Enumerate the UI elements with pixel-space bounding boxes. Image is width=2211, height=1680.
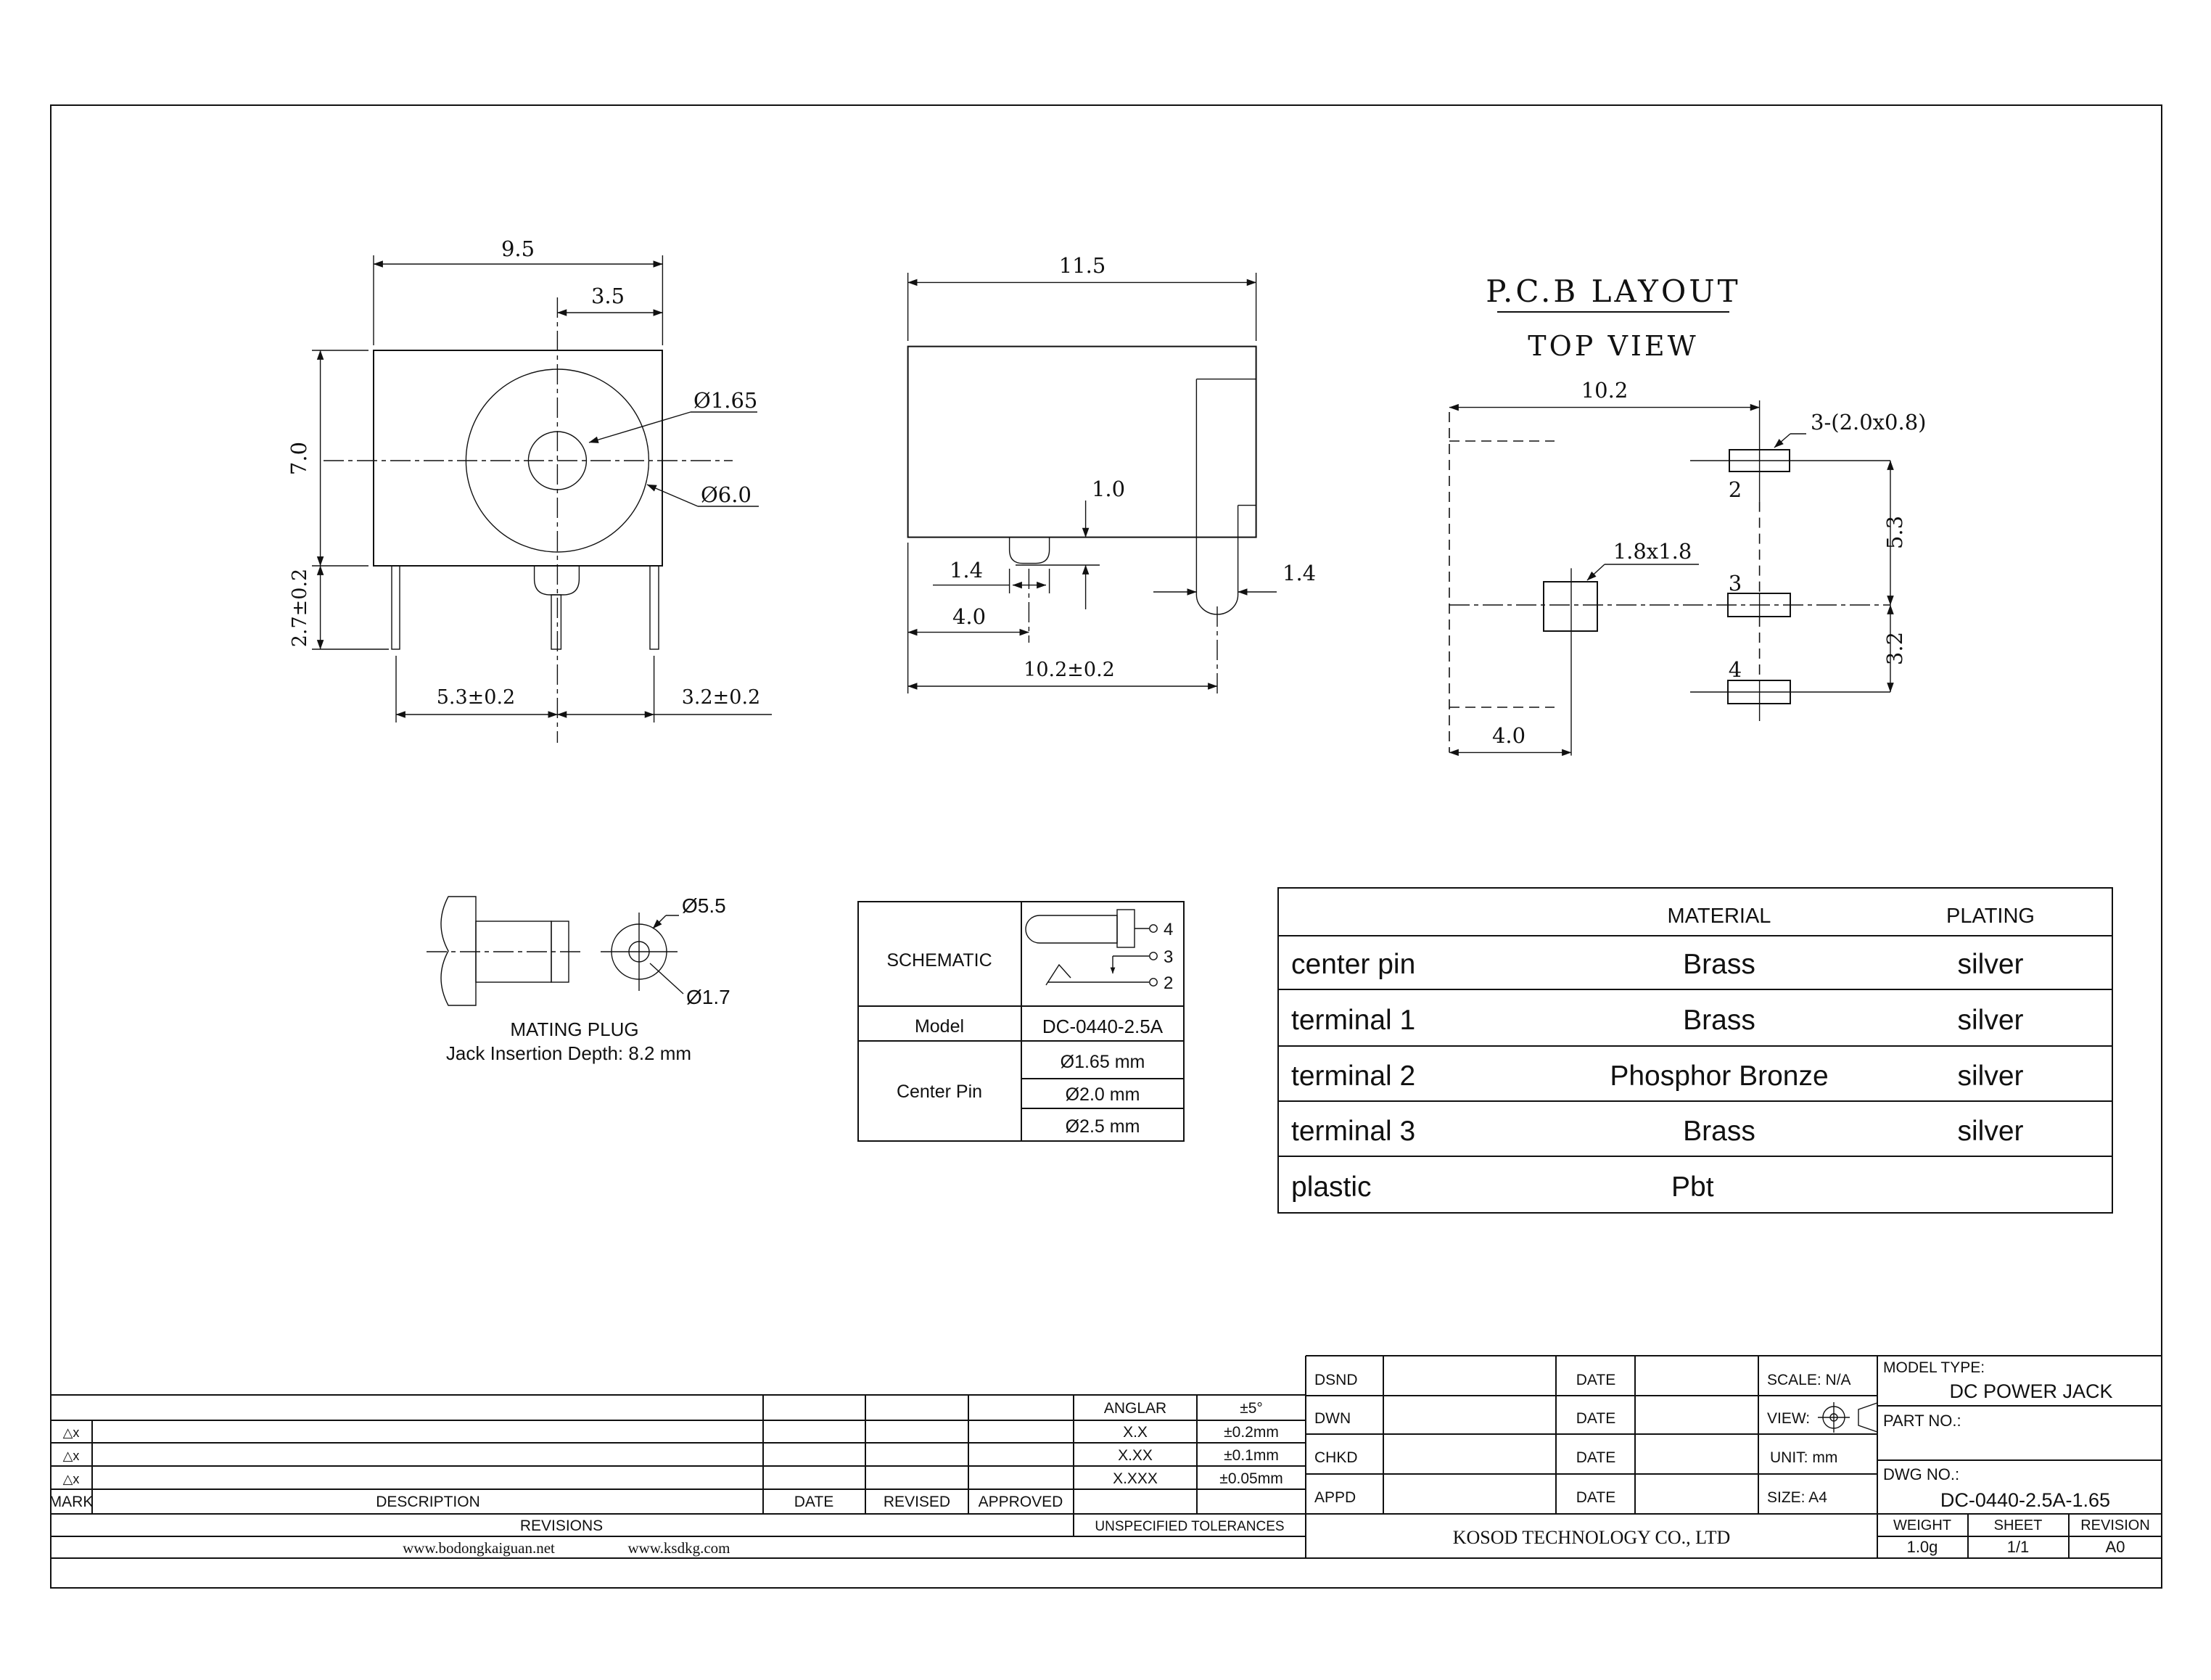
tol-name-xx: X.X xyxy=(1123,1424,1148,1441)
website-2: www.ksdkg.com xyxy=(628,1539,730,1557)
front-center-pin-boss xyxy=(535,566,580,595)
dim-front-offset: 3.5 xyxy=(557,284,662,313)
size-field: SIZE: A4 xyxy=(1767,1489,1827,1506)
revision-mark-3: △x xyxy=(63,1472,80,1486)
drawing-sheet: 9.5 3.5 Ø1.65 Ø6.0 7.0 2. xyxy=(0,0,2211,1680)
front-view: 9.5 3.5 Ø1.65 Ø6.0 7.0 2. xyxy=(287,236,772,743)
schematic-pin2-label: 2 xyxy=(1164,973,1173,993)
dim-text-pcb-pitch-upper: 5.3 xyxy=(1882,516,1907,549)
material-row-center-pin: center pin Brass silver xyxy=(1291,949,2024,980)
pcb-subtitle: TOP VIEW xyxy=(1528,330,1698,362)
schematic-pin4-label: 4 xyxy=(1164,920,1173,939)
part-material: Brass xyxy=(1683,1116,1755,1147)
leader-pin-diameter: Ø1.65 xyxy=(589,388,757,442)
dwg-no-label: DWG NO.: xyxy=(1883,1465,1959,1483)
revision-mark-1: △x xyxy=(63,1425,80,1440)
part-no-label: PART NO.: xyxy=(1883,1412,1961,1430)
material-table: MATERIAL PLATING center pin Brass silver… xyxy=(1278,888,2112,1213)
sheet-value: 1/1 xyxy=(2007,1538,2030,1556)
dim-text-front-height: 7.0 xyxy=(287,442,311,475)
pcb-outline-dashed xyxy=(1449,412,1555,752)
company-name: KOSOD TECHNOLOGY CO., LTD xyxy=(1453,1527,1731,1548)
dim-text-barrel-diameter: Ø6.0 xyxy=(701,482,752,507)
part-name: terminal 2 xyxy=(1291,1061,1415,1092)
view-field: VIEW: xyxy=(1767,1410,1810,1427)
dim-text-front-width: 9.5 xyxy=(501,236,535,261)
tol-value-xx: ±0.2mm xyxy=(1224,1424,1279,1441)
center-pin-label: Center Pin xyxy=(897,1082,982,1102)
tol-name-xxx: X.XX xyxy=(1118,1447,1153,1464)
part-material: Brass xyxy=(1683,949,1755,980)
leader-plug-inner: Ø1.7 xyxy=(650,963,730,1008)
part-name: terminal 3 xyxy=(1291,1116,1415,1147)
front-center-pin xyxy=(551,595,561,649)
mark-header: MARK xyxy=(49,1494,94,1510)
side-terminal xyxy=(1196,379,1256,614)
weight-value: 1.0g xyxy=(1907,1538,1938,1556)
appd-date-label: DATE xyxy=(1576,1489,1615,1506)
tol-value-xxxx: ±0.05mm xyxy=(1219,1470,1282,1487)
pcb-layout: P.C.B LAYOUT TOP VIEW 10.2 2 xyxy=(1449,273,1926,756)
material-row-terminal-3: terminal 3 Brass silver xyxy=(1291,1116,2024,1147)
plug-inner-dia-text: Ø1.7 xyxy=(686,986,730,1008)
dwn-date-label: DATE xyxy=(1576,1410,1615,1427)
mating-plug-title: MATING PLUG xyxy=(510,1018,638,1040)
tolerances-title: UNSPECIFIED TOLERANCES xyxy=(1095,1519,1284,1534)
part-plating: silver xyxy=(1957,1061,2023,1092)
part-name: plastic xyxy=(1291,1172,1372,1203)
approved-header: APPROVED xyxy=(979,1494,1063,1510)
front-right-pin xyxy=(650,566,659,649)
plating-col-header: PLATING xyxy=(1946,905,2035,928)
side-body xyxy=(908,347,1256,538)
revision-header: REVISION xyxy=(2080,1518,2150,1533)
pcb-pad3-label: 3 xyxy=(1729,571,1742,596)
schematic-pin3-node xyxy=(1150,952,1157,960)
dim-text-leg-length: 2.7±0.2 xyxy=(289,569,311,648)
dim-boss-height: 1.0 xyxy=(1016,477,1125,609)
revision-mark-2: △x xyxy=(63,1449,80,1463)
dim-terminal-width: 1.4 xyxy=(1153,561,1316,592)
revised-header: REVISED xyxy=(884,1494,950,1510)
schematic-glyph: 4 3 2 xyxy=(1026,910,1173,993)
part-material: Phosphor Bronze xyxy=(1610,1061,1828,1092)
dim-side-depth: 11.5 xyxy=(908,253,1256,341)
description-header: DESCRIPTION xyxy=(376,1494,480,1510)
scale-field: SCALE: N/A xyxy=(1767,1372,1851,1388)
material-row-plastic: plastic Pbt xyxy=(1291,1172,1714,1203)
leader-barrel-diameter: Ø6.0 xyxy=(647,482,759,507)
pcb-pad4-label: 4 xyxy=(1729,657,1742,682)
part-material: Brass xyxy=(1683,1005,1755,1036)
schematic-label: SCHEMATIC xyxy=(886,950,992,971)
date-header: DATE xyxy=(794,1494,833,1510)
center-pin-opt1: Ø1.65 mm xyxy=(1061,1052,1145,1072)
schematic-pin2-node xyxy=(1150,979,1157,986)
plug-outer-dia-text: Ø5.5 xyxy=(682,894,726,917)
dim-text-boss-height: 1.0 xyxy=(1092,477,1125,501)
schematic-pin4-node xyxy=(1150,925,1157,932)
dim-pcb-pad-offset: 4.0 xyxy=(1449,723,1571,752)
side-center-pin-boss xyxy=(1010,538,1050,564)
leader-plug-outer: Ø5.5 xyxy=(653,894,726,928)
dim-terminal-offset: 10.2±0.2 xyxy=(908,643,1217,693)
appd-label: APPD xyxy=(1314,1489,1356,1506)
dsnd-label: DSND xyxy=(1314,1372,1358,1388)
model-label: Model xyxy=(915,1016,964,1037)
material-row-terminal-1: terminal 1 Brass silver xyxy=(1291,1005,2024,1036)
leader-pad-note: 1.8x1.8 xyxy=(1587,539,1699,580)
dim-pcb-span: 10.2 xyxy=(1449,378,1760,408)
dim-pin-pitch: 5.3±0.2 3.2±0.2 xyxy=(396,656,772,722)
dim-front-height: 7.0 xyxy=(287,350,368,566)
sheet-border xyxy=(51,105,2162,1588)
dim-text-pin-width: 1.4 xyxy=(950,558,983,582)
dwn-label: DWN xyxy=(1314,1410,1351,1427)
dim-pcb-pitch: 5.3 3.2 xyxy=(1882,461,1907,692)
mating-plug: Ø5.5 Ø1.7 MATING PLUG Jack Insertion Dep… xyxy=(427,894,730,1064)
spec-table: SCHEMATIC Model DC-0440-2.5A Center Pin … xyxy=(858,902,1184,1141)
material-col-header: MATERIAL xyxy=(1668,905,1771,928)
dim-text-pin-diameter: Ø1.65 xyxy=(693,388,757,413)
model-value: DC-0440-2.5A xyxy=(1042,1016,1164,1037)
part-material: Pbt xyxy=(1671,1172,1714,1203)
center-pin-opt2: Ø2.0 mm xyxy=(1066,1084,1140,1105)
leader-slot-note: 3-(2.0x0.8) xyxy=(1774,410,1926,448)
part-plating: silver xyxy=(1957,1116,2023,1147)
dim-text-front-offset: 3.5 xyxy=(591,284,625,308)
dim-text-pin-offset: 4.0 xyxy=(952,604,986,629)
dim-text-pcb-pitch-lower: 3.2 xyxy=(1882,632,1907,665)
dim-text-pcb-pad-offset: 4.0 xyxy=(1492,723,1526,748)
sheet-header: SHEET xyxy=(1994,1518,2043,1533)
schematic-pin3-label: 3 xyxy=(1164,947,1173,967)
part-name: center pin xyxy=(1291,949,1415,980)
pcb-pad-note: 1.8x1.8 xyxy=(1613,539,1692,564)
pcb-title: P.C.B LAYOUT xyxy=(1486,273,1740,309)
dim-text-pitch-left: 5.3±0.2 xyxy=(437,686,516,709)
part-plating: silver xyxy=(1957,949,2023,980)
model-type-label: MODEL TYPE: xyxy=(1883,1359,1985,1376)
part-name: terminal 1 xyxy=(1291,1005,1415,1036)
dim-text-pcb-span: 10.2 xyxy=(1581,378,1629,403)
tol-name-anglar: ANGLAR xyxy=(1104,1400,1166,1417)
dim-text-side-depth: 11.5 xyxy=(1059,253,1106,278)
revisions-label: REVISIONS xyxy=(520,1518,603,1534)
chkd-label: CHKD xyxy=(1314,1449,1358,1466)
chkd-date-label: DATE xyxy=(1576,1449,1615,1466)
title-block: △x △x △x MARK DESCRIPTION DATE REVISED A… xyxy=(49,1356,2162,1558)
mating-plug-note: Jack Insertion Depth: 8.2 mm xyxy=(446,1042,691,1064)
dim-text-terminal-offset: 10.2±0.2 xyxy=(1024,659,1115,681)
plug-cap xyxy=(441,897,476,1005)
unit-field: UNIT: mm xyxy=(1770,1449,1837,1466)
website-1: www.bodongkaiguan.net xyxy=(403,1539,555,1557)
tol-value-anglar: ±5° xyxy=(1240,1400,1263,1417)
dwg-no-value: DC-0440-2.5A-1.65 xyxy=(1940,1489,2110,1511)
tol-name-xxxx: X.XXX xyxy=(1113,1470,1158,1487)
dsnd-date-label: DATE xyxy=(1576,1372,1615,1388)
front-left-pin xyxy=(392,566,400,649)
dim-text-pitch-right: 3.2±0.2 xyxy=(682,686,761,709)
dim-text-terminal-width: 1.4 xyxy=(1282,561,1316,585)
front-body xyxy=(374,350,662,566)
projection-icon xyxy=(1818,1402,1877,1433)
approval-block: DSND DWN CHKD APPD DATE DATE DATE DATE S… xyxy=(1314,1372,1877,1548)
side-view: 11.5 1.0 1.4 4.0 10.2±0.2 xyxy=(908,253,1317,693)
material-row-terminal-2: terminal 2 Phosphor Bronze silver xyxy=(1291,1061,2024,1092)
pcb-pad2-label: 2 xyxy=(1729,477,1742,502)
part-plating: silver xyxy=(1957,1005,2023,1036)
pcb-slot-note: 3-(2.0x0.8) xyxy=(1811,410,1926,435)
tol-value-xxx: ±0.1mm xyxy=(1224,1447,1279,1464)
drawing-info-block: MODEL TYPE: DC POWER JACK PART NO.: DWG … xyxy=(1883,1359,2150,1556)
dim-leg-length: 2.7±0.2 xyxy=(289,566,389,649)
weight-header: WEIGHT xyxy=(1893,1518,1951,1533)
revision-value: A0 xyxy=(2106,1538,2125,1556)
pcb-pad-1 xyxy=(1544,582,1597,631)
center-pin-opt3: Ø2.5 mm xyxy=(1066,1116,1140,1137)
model-type-value: DC POWER JACK xyxy=(1949,1380,2112,1402)
